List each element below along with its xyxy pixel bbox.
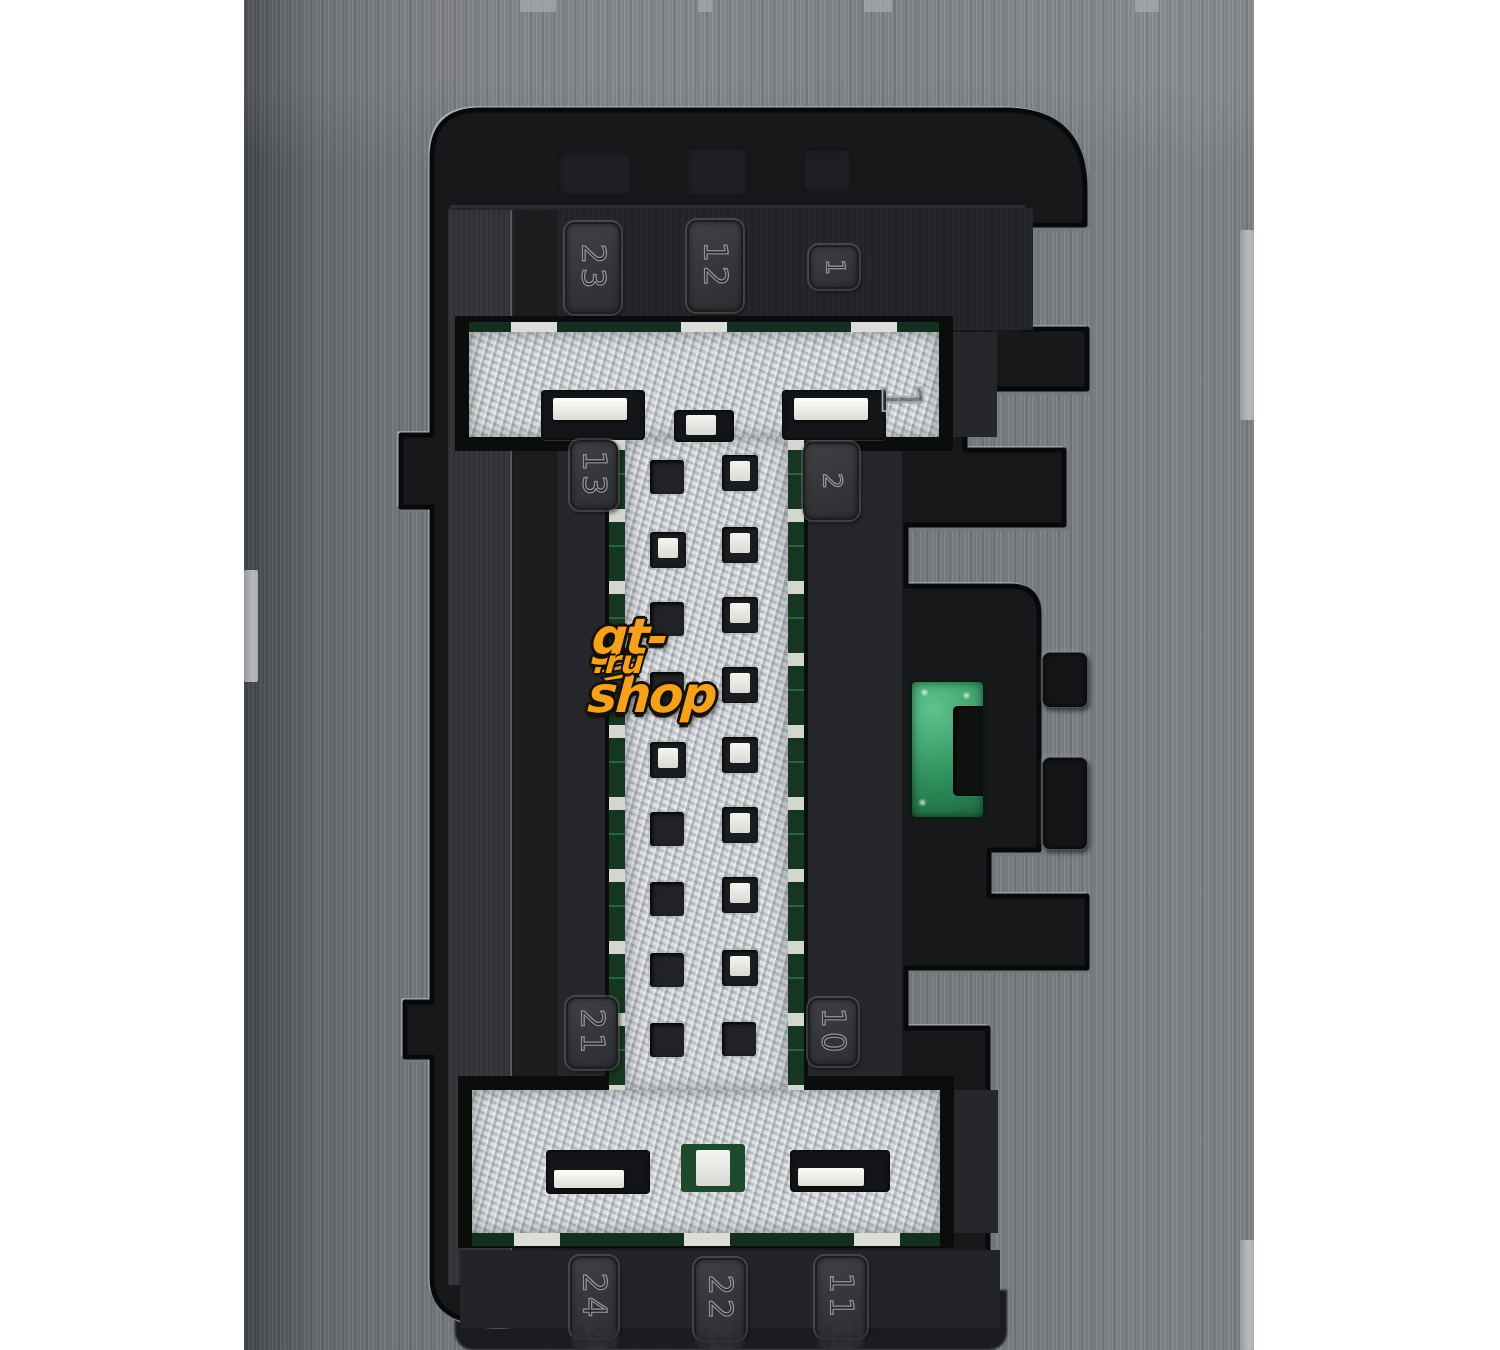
terminal-pin-contact [722, 950, 758, 986]
pin-cavity-hole [722, 1022, 756, 1056]
pin-cavity-hole [650, 460, 684, 494]
pin-number-plaque: 1 [809, 245, 859, 289]
terminal-pin-contact [722, 597, 758, 633]
pin-field [0, 0, 1500, 1350]
terminal-pin-contact [722, 667, 758, 703]
pin-number-label: 12 [696, 242, 734, 291]
terminal-pin-contact [650, 742, 686, 778]
pcb-notch [953, 706, 983, 796]
watermark-domain-suffix: .ru [592, 643, 645, 681]
product-photo: 23 12 1 13 2 21 10 24 22 11 1 24 22 11 [0, 0, 1500, 1350]
pin-cavity-hole [650, 812, 684, 846]
reflection-plaque: 11 [818, 1326, 864, 1350]
pin-cavity-hole [650, 1023, 684, 1057]
pin-number-label: 23 [574, 244, 612, 293]
edge-tab [1240, 230, 1254, 420]
reflection-label: 11 [826, 1321, 856, 1350]
pin-number-plaque: 21 [566, 997, 618, 1069]
edge-tab [244, 570, 258, 682]
reflection-label: 22 [705, 1322, 735, 1350]
keying-slot [1042, 652, 1088, 708]
pin-number-plaque: 2 [803, 442, 859, 520]
pin-number-label: 1 [819, 259, 849, 276]
terminal-pin-contact [722, 737, 758, 773]
terminal-pin-contact [722, 455, 758, 491]
pin-number-label: 11 [822, 1273, 860, 1322]
terminal-pin-contact [722, 877, 758, 913]
terminal-pin-contact [650, 532, 686, 568]
pin-number-label: 2 [816, 473, 846, 490]
pin-cavity-hole [650, 882, 684, 916]
terminal-pin-contact [722, 527, 758, 563]
engraved-mark-label: 1 [868, 380, 933, 416]
pin-number-label: 22 [701, 1275, 739, 1324]
pin-number-label: 24 [575, 1273, 613, 1322]
pin-number-plaque: 10 [808, 998, 858, 1066]
pin-number-plaque: 13 [570, 440, 618, 510]
keying-slot [1042, 757, 1088, 850]
reflection-plaque: 22 [696, 1328, 744, 1350]
pin-number-label: 21 [573, 1009, 611, 1058]
pin-number-label: 10 [814, 1008, 852, 1057]
highlight-glint [962, 691, 971, 700]
terminal-pin-contact [722, 807, 758, 843]
pin-number-plaque: 12 [687, 220, 743, 312]
pcb-green-window [912, 682, 983, 817]
pin-number-plaque: 23 [565, 222, 621, 314]
highlight-glint [918, 798, 927, 807]
reflection-label: 24 [580, 1321, 610, 1350]
highlight-glint [920, 688, 929, 697]
pin-cavity-hole [650, 953, 684, 987]
engraved-position-mark: 1 [875, 362, 927, 434]
edge-tab [1240, 1240, 1254, 1350]
pin-number-label: 13 [575, 451, 613, 500]
reflection-plaque: 24 [572, 1326, 618, 1350]
